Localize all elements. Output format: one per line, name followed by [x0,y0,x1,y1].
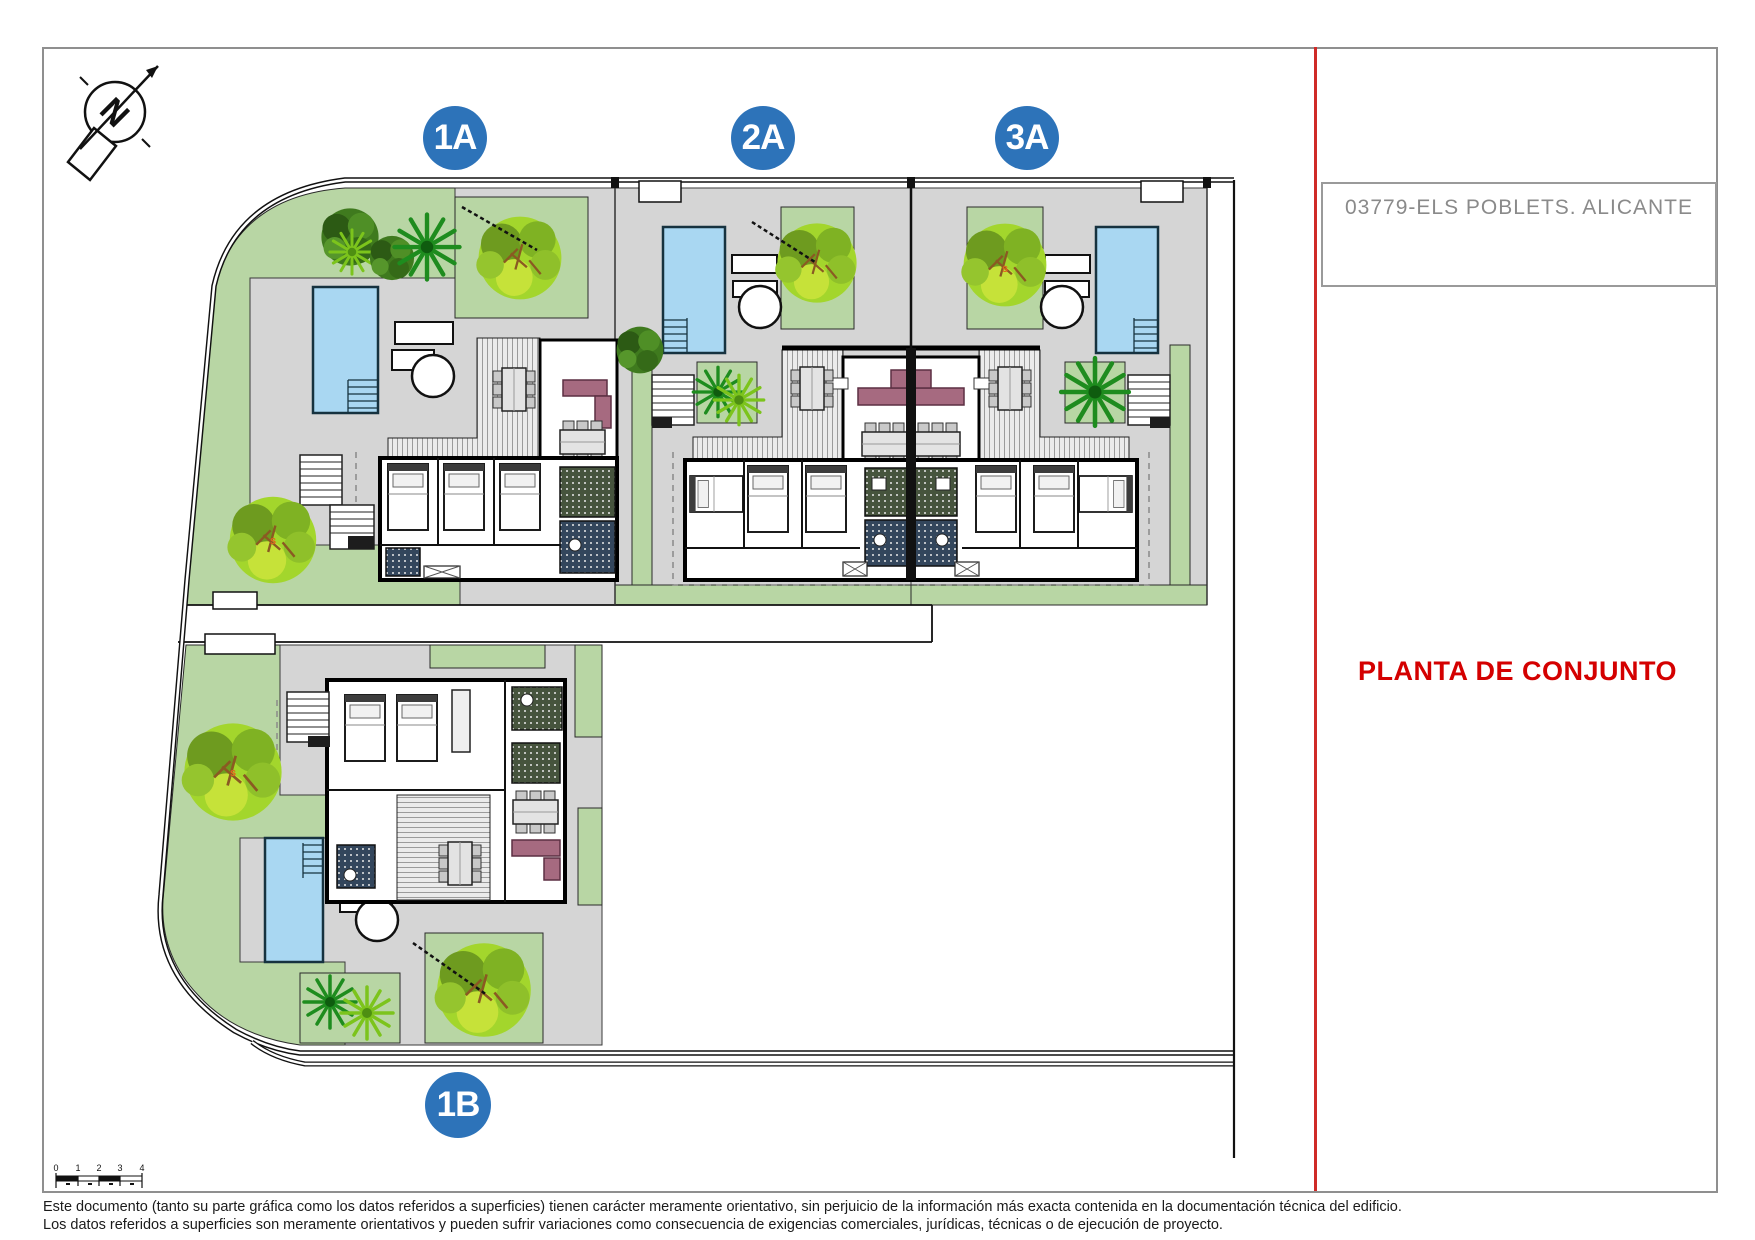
project-title: 03779-ELS POBLETS. ALICANTE [1323,196,1715,220]
house-3a [911,348,1170,585]
tree-mark: s [1002,263,1008,275]
scale-bar: 0 1 2 3 4 [53,1163,144,1188]
unit-badge-1b: 1B [425,1072,491,1138]
unit-badge-1a: 1A [423,106,487,170]
unit-badge-3a: 3A [995,106,1059,170]
north-arrow-icon: N [68,66,158,180]
svg-text:4: 4 [139,1163,144,1173]
svg-text:3: 3 [117,1163,122,1173]
svg-text:0: 0 [53,1163,58,1173]
svg-text:1: 1 [75,1163,80,1173]
title-block: 03779-ELS POBLETS. ALICANTE [1321,182,1717,287]
plan-caption: PLANTA DE CONJUNTO [1317,656,1718,687]
disclaimer-line-2: Los datos referidos a superficies son me… [43,1217,1223,1233]
site-plan-sheet: s s s N 0 1 2 3 4 [0,0,1755,1240]
panel-separator-line [1314,47,1317,1191]
tree-mark: s [270,535,276,547]
svg-text:2: 2 [96,1163,101,1173]
tree-mark: s [230,767,236,779]
house-2a [652,348,911,585]
unit-badge-2a: 2A [731,106,795,170]
disclaimer-line-1: Este documento (tanto su parte gráfica c… [43,1199,1402,1215]
